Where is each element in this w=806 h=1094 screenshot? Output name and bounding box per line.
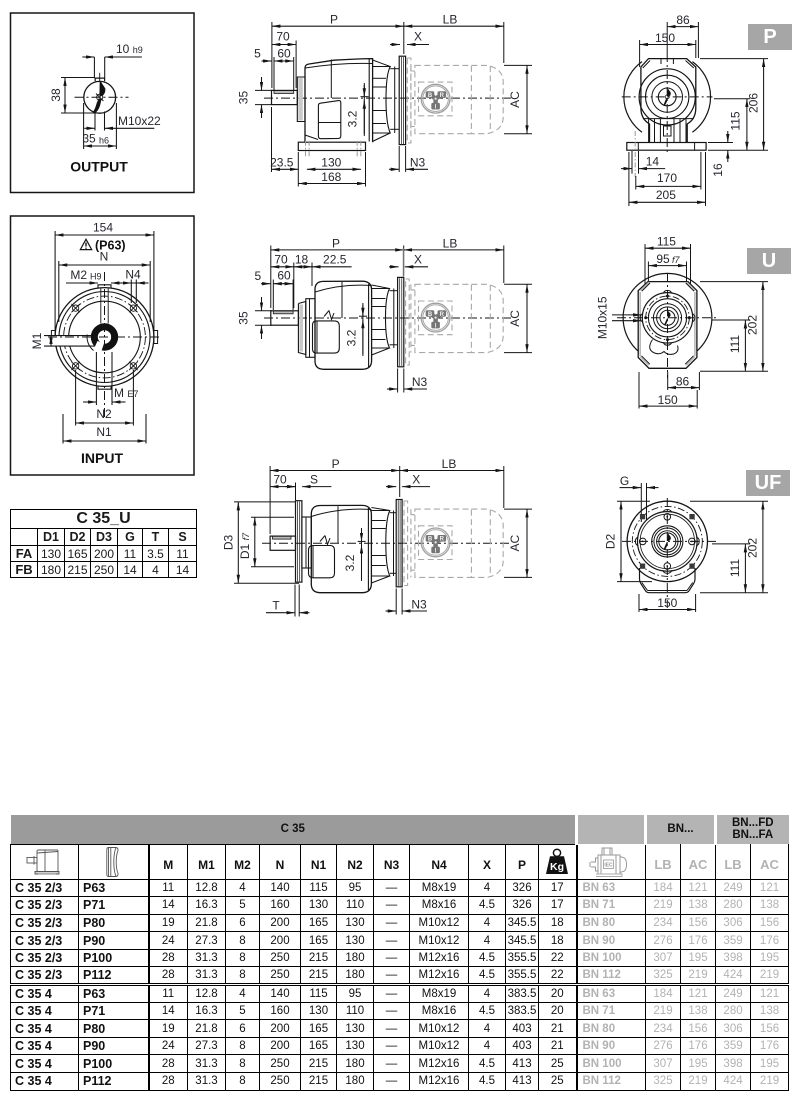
svg-text:111: 111 (728, 335, 742, 354)
svg-text:P: P (330, 13, 338, 27)
svg-text:168: 168 (321, 170, 341, 184)
svg-text:3.2: 3.2 (343, 554, 357, 571)
svg-text:115: 115 (728, 111, 742, 130)
svg-text:N: N (100, 250, 109, 264)
svg-text:N3: N3 (412, 375, 428, 389)
svg-text:X: X (412, 473, 420, 487)
svg-text:38: 38 (49, 88, 63, 102)
svg-text:35: 35 (237, 91, 251, 105)
svg-text:G: G (620, 474, 629, 488)
svg-text:5: 5 (254, 47, 261, 61)
svg-text:86: 86 (676, 13, 690, 27)
svg-text:202: 202 (746, 538, 760, 558)
svg-text:35: 35 (237, 311, 251, 325)
svg-text:60: 60 (277, 269, 291, 283)
svg-text:LB: LB (443, 236, 458, 250)
svg-text:14: 14 (646, 154, 660, 168)
svg-text:111: 111 (728, 559, 742, 578)
svg-text:86: 86 (676, 374, 690, 388)
svg-text:150: 150 (655, 31, 675, 45)
svg-text:130: 130 (321, 155, 341, 169)
svg-text:M E7: M E7 (114, 386, 138, 400)
svg-text:P: P (332, 457, 340, 471)
svg-text:22.5: 22.5 (323, 253, 347, 267)
svg-text:70: 70 (276, 30, 290, 44)
svg-text:IEC: IEC (605, 862, 614, 868)
svg-text:D2: D2 (604, 534, 618, 550)
svg-text:M1: M1 (30, 332, 44, 349)
svg-text:170: 170 (657, 171, 677, 185)
svg-text:16: 16 (711, 163, 725, 177)
svg-text:M10x22: M10x22 (118, 114, 161, 128)
svg-text:N3: N3 (410, 155, 426, 169)
svg-text:10 h9: 10 h9 (116, 42, 143, 56)
svg-text:154: 154 (93, 221, 113, 235)
svg-text:P: P (332, 236, 340, 250)
svg-text:D3: D3 (222, 535, 236, 551)
svg-text:LB: LB (442, 457, 457, 471)
svg-text:23.5: 23.5 (270, 155, 294, 169)
svg-text:150: 150 (657, 596, 677, 610)
svg-text:OUTPUT: OUTPUT (70, 159, 128, 175)
svg-text:T: T (272, 599, 280, 613)
svg-text:Kg: Kg (550, 861, 564, 873)
svg-text:INPUT: INPUT (81, 450, 123, 466)
svg-text:3.2: 3.2 (344, 329, 358, 346)
svg-text:70: 70 (274, 253, 288, 267)
svg-text:35: 35 (82, 132, 96, 146)
svg-text:X: X (414, 30, 422, 44)
svg-text:M10x15: M10x15 (596, 296, 610, 339)
svg-text:3.2: 3.2 (346, 110, 360, 127)
svg-text:f7: f7 (672, 255, 681, 265)
svg-text:150: 150 (658, 393, 678, 407)
svg-text:h6: h6 (99, 136, 109, 146)
svg-text:60: 60 (277, 47, 291, 61)
svg-text:18: 18 (295, 253, 309, 267)
svg-text:D1 f7: D1 f7 (238, 532, 252, 559)
svg-text:70: 70 (273, 473, 287, 487)
svg-text:H9: H9 (90, 272, 102, 282)
svg-text:206: 206 (746, 93, 760, 113)
svg-text:N2: N2 (96, 407, 112, 421)
svg-text:5: 5 (254, 269, 261, 283)
svg-text:N3: N3 (411, 597, 427, 611)
svg-text:202: 202 (746, 315, 760, 335)
svg-text:205: 205 (656, 188, 676, 202)
svg-text:115: 115 (657, 235, 676, 249)
svg-text:LB: LB (443, 13, 458, 27)
svg-text:S: S (310, 473, 318, 487)
svg-text:X: X (414, 253, 422, 267)
svg-text:95: 95 (656, 252, 670, 266)
svg-text:M2: M2 (70, 268, 87, 282)
svg-text:N4: N4 (125, 268, 141, 282)
svg-text:N1: N1 (96, 425, 112, 439)
